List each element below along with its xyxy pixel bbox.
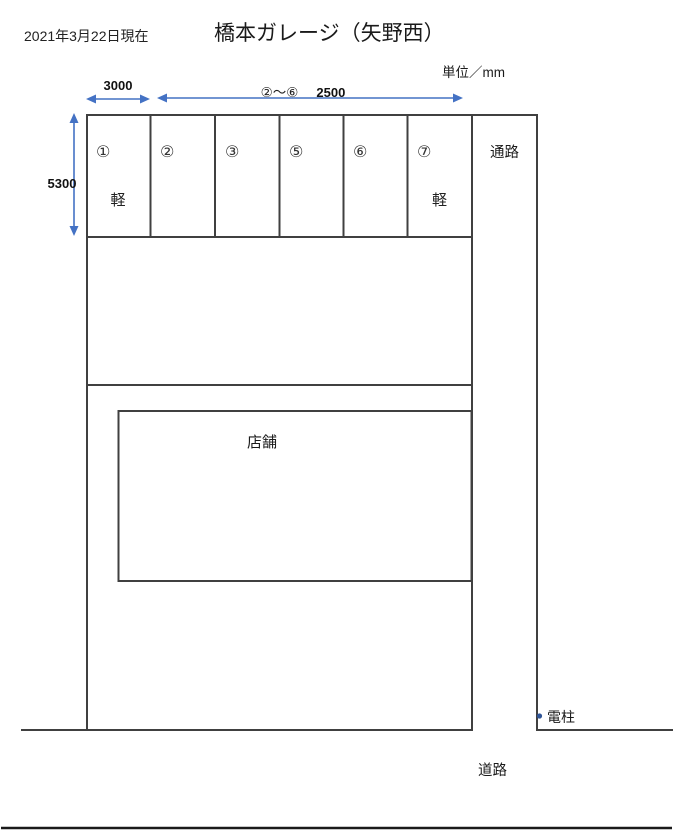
page-title: 橋本ガレージ（矢野西） [214,17,445,47]
space-number: ① [96,145,150,161]
date-label: 2021年3月22日現在 [24,26,149,46]
space-number: ⑤ [289,145,343,161]
parking-space-5: ⑤ [279,115,343,237]
space-number: ⑥ [353,145,407,161]
parking-space-7: ⑦ 軽 [407,115,472,237]
parking-space-6: ⑥ [343,115,407,237]
space-number: ⑦ [417,145,472,161]
kei-car-label: 軽 [86,189,150,210]
utility-pole-dot [537,713,542,718]
parking-floor-plan: 2021年3月22日現在 橋本ガレージ（矢野西） 単位／mm 3000 ②～⑥ … [0,0,673,830]
kei-car-label: 軽 [407,189,472,210]
parking-space-2: ② [150,115,215,237]
utility-pole-label: 電柱 [547,707,575,727]
parking-space-3: ③ [215,115,279,237]
store-outline [119,411,472,581]
space-number: ② [160,145,215,161]
dim-space1-width: 3000 [86,78,150,93]
road-label: 道路 [478,759,507,780]
dim-range-label: ②～⑥ [261,81,299,101]
dim-spaces-2-6: ②～⑥ 2500 [157,81,449,101]
unit-label: 単位／mm [442,61,505,81]
space-number: ③ [225,145,279,161]
dim-spaces2to6-width: 2500 [316,85,345,100]
aisle-label: 通路 [472,141,537,162]
parking-space-1: ① 軽 [86,115,150,237]
store-label: 店舗 [247,431,277,452]
dim-depth: 5300 [42,176,82,191]
